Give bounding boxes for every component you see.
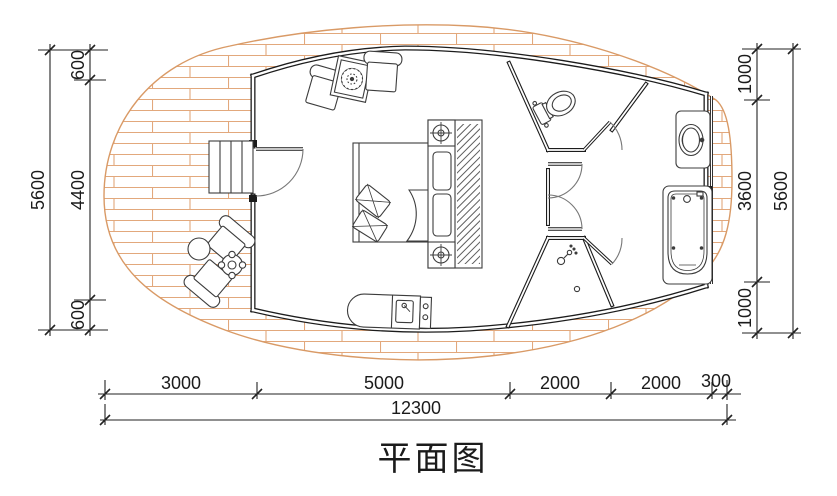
dim-bottom-3000: 3000 <box>161 373 201 393</box>
dim-right-1000-bottom: 1000 <box>735 288 755 328</box>
dim-bottom-total: 12300 <box>391 398 441 418</box>
outdoor-round-table <box>188 238 210 260</box>
dim-right-1000-top: 1000 <box>735 54 755 94</box>
floor-plan-page: 600 4400 600 5600 1000 3600 1000 5600 30… <box>0 0 837 496</box>
door-jamb <box>249 195 257 202</box>
drawing-title: 平面图 <box>378 439 489 479</box>
headboard-panel <box>433 194 451 236</box>
dim-left-600-bottom: 600 <box>68 300 88 330</box>
dim-left-total: 5600 <box>28 170 48 210</box>
washbasin-vanity <box>676 111 710 168</box>
headboard-panel <box>433 152 451 190</box>
kitchenette-counter <box>347 294 432 330</box>
dim-left-4400: 4400 <box>68 170 88 210</box>
dim-bottom-2000-b: 2000 <box>641 373 681 393</box>
dim-right-3600: 3600 <box>735 171 755 211</box>
dim-right-total: 5600 <box>771 171 791 211</box>
double-bed <box>352 143 430 242</box>
bathtub <box>663 186 712 284</box>
dim-left-600-top: 600 <box>68 50 88 80</box>
dim-bottom-5000: 5000 <box>364 373 404 393</box>
headboard-cabinet <box>428 120 482 268</box>
floor-plan-drawing: 600 4400 600 5600 1000 3600 1000 5600 30… <box>0 0 837 496</box>
dim-bottom-2000-a: 2000 <box>540 373 580 393</box>
dim-bottom-300: 300 <box>701 371 731 391</box>
armchair <box>362 51 403 93</box>
wardrobe-hangers <box>457 124 480 264</box>
